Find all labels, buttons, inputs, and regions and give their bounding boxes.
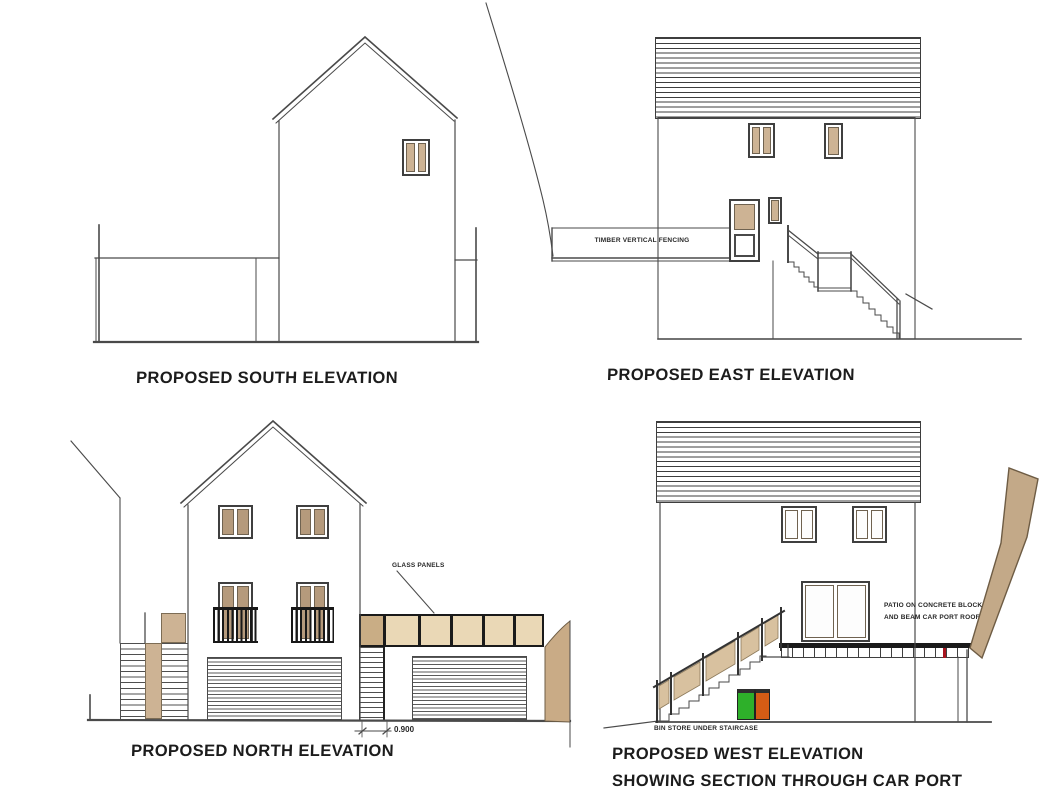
north-balcony-railing-left bbox=[213, 607, 258, 643]
bin-store-label: BIN STORE UNDER STAIRCASE bbox=[654, 725, 758, 732]
window-pane bbox=[785, 510, 798, 539]
west-upper-window-right bbox=[852, 506, 887, 543]
pier-dimension-label: 0.900 bbox=[394, 725, 414, 734]
timber-fencing-label: TIMBER VERTICAL FENCING bbox=[556, 237, 728, 244]
window-pane bbox=[805, 585, 834, 638]
window-pane bbox=[406, 143, 415, 172]
patio-note-line2: AND BEAM CAR PORT ROOF bbox=[884, 614, 980, 621]
east-upper-window-single bbox=[824, 123, 843, 159]
south-loft-window bbox=[402, 139, 430, 176]
east-upper-window-double bbox=[748, 123, 775, 158]
north-elevation-title: PROPOSED NORTH ELEVATION bbox=[131, 742, 395, 761]
east-elevation-title: PROPOSED EAST ELEVATION bbox=[607, 366, 856, 385]
window-pane bbox=[801, 510, 814, 539]
patio-note-line1: PATIO ON CONCRETE BLOCK bbox=[884, 602, 982, 609]
north-balcony-railing-right bbox=[291, 607, 334, 643]
elevation-drawing-sheet: PROPOSED SOUTH ELEVATION PROPOSED EAST E… bbox=[0, 0, 1059, 811]
window-pane bbox=[828, 127, 839, 155]
window-pane bbox=[752, 127, 760, 154]
north-upper-window-right bbox=[296, 505, 329, 539]
north-upper-window-left bbox=[218, 505, 253, 539]
window-pane bbox=[871, 510, 883, 539]
north-fence-tan-panel bbox=[161, 613, 186, 643]
west-elevation-title-line2: SHOWING SECTION THROUGH CAR PORT bbox=[612, 772, 963, 791]
west-elevation-title-line1: PROPOSED WEST ELEVATION bbox=[612, 745, 864, 764]
south-elevation-title: PROPOSED SOUTH ELEVATION bbox=[136, 369, 399, 388]
window-pane bbox=[300, 509, 311, 535]
window-pane bbox=[418, 143, 427, 172]
glass-panels-label: GLASS PANELS bbox=[392, 562, 444, 569]
window-pane bbox=[314, 509, 325, 535]
window-pane bbox=[237, 509, 249, 535]
west-middle-window bbox=[801, 581, 870, 642]
window-pane bbox=[856, 510, 868, 539]
door-lower-panel bbox=[734, 234, 755, 257]
green-wheelie-bin bbox=[737, 689, 755, 720]
north-fence-tan-post bbox=[145, 643, 162, 719]
east-side-window bbox=[768, 197, 782, 224]
window-pane bbox=[771, 200, 779, 221]
window-pane bbox=[222, 509, 234, 535]
door-glazed-panel bbox=[734, 204, 755, 230]
orange-wheelie-bin bbox=[755, 689, 770, 720]
window-pane bbox=[837, 585, 866, 638]
window-pane bbox=[763, 127, 771, 154]
west-upper-window-left bbox=[781, 506, 817, 543]
east-entrance-door bbox=[729, 199, 760, 262]
east-elevation-lines bbox=[552, 118, 1021, 339]
south-elevation-lines bbox=[94, 3, 553, 342]
